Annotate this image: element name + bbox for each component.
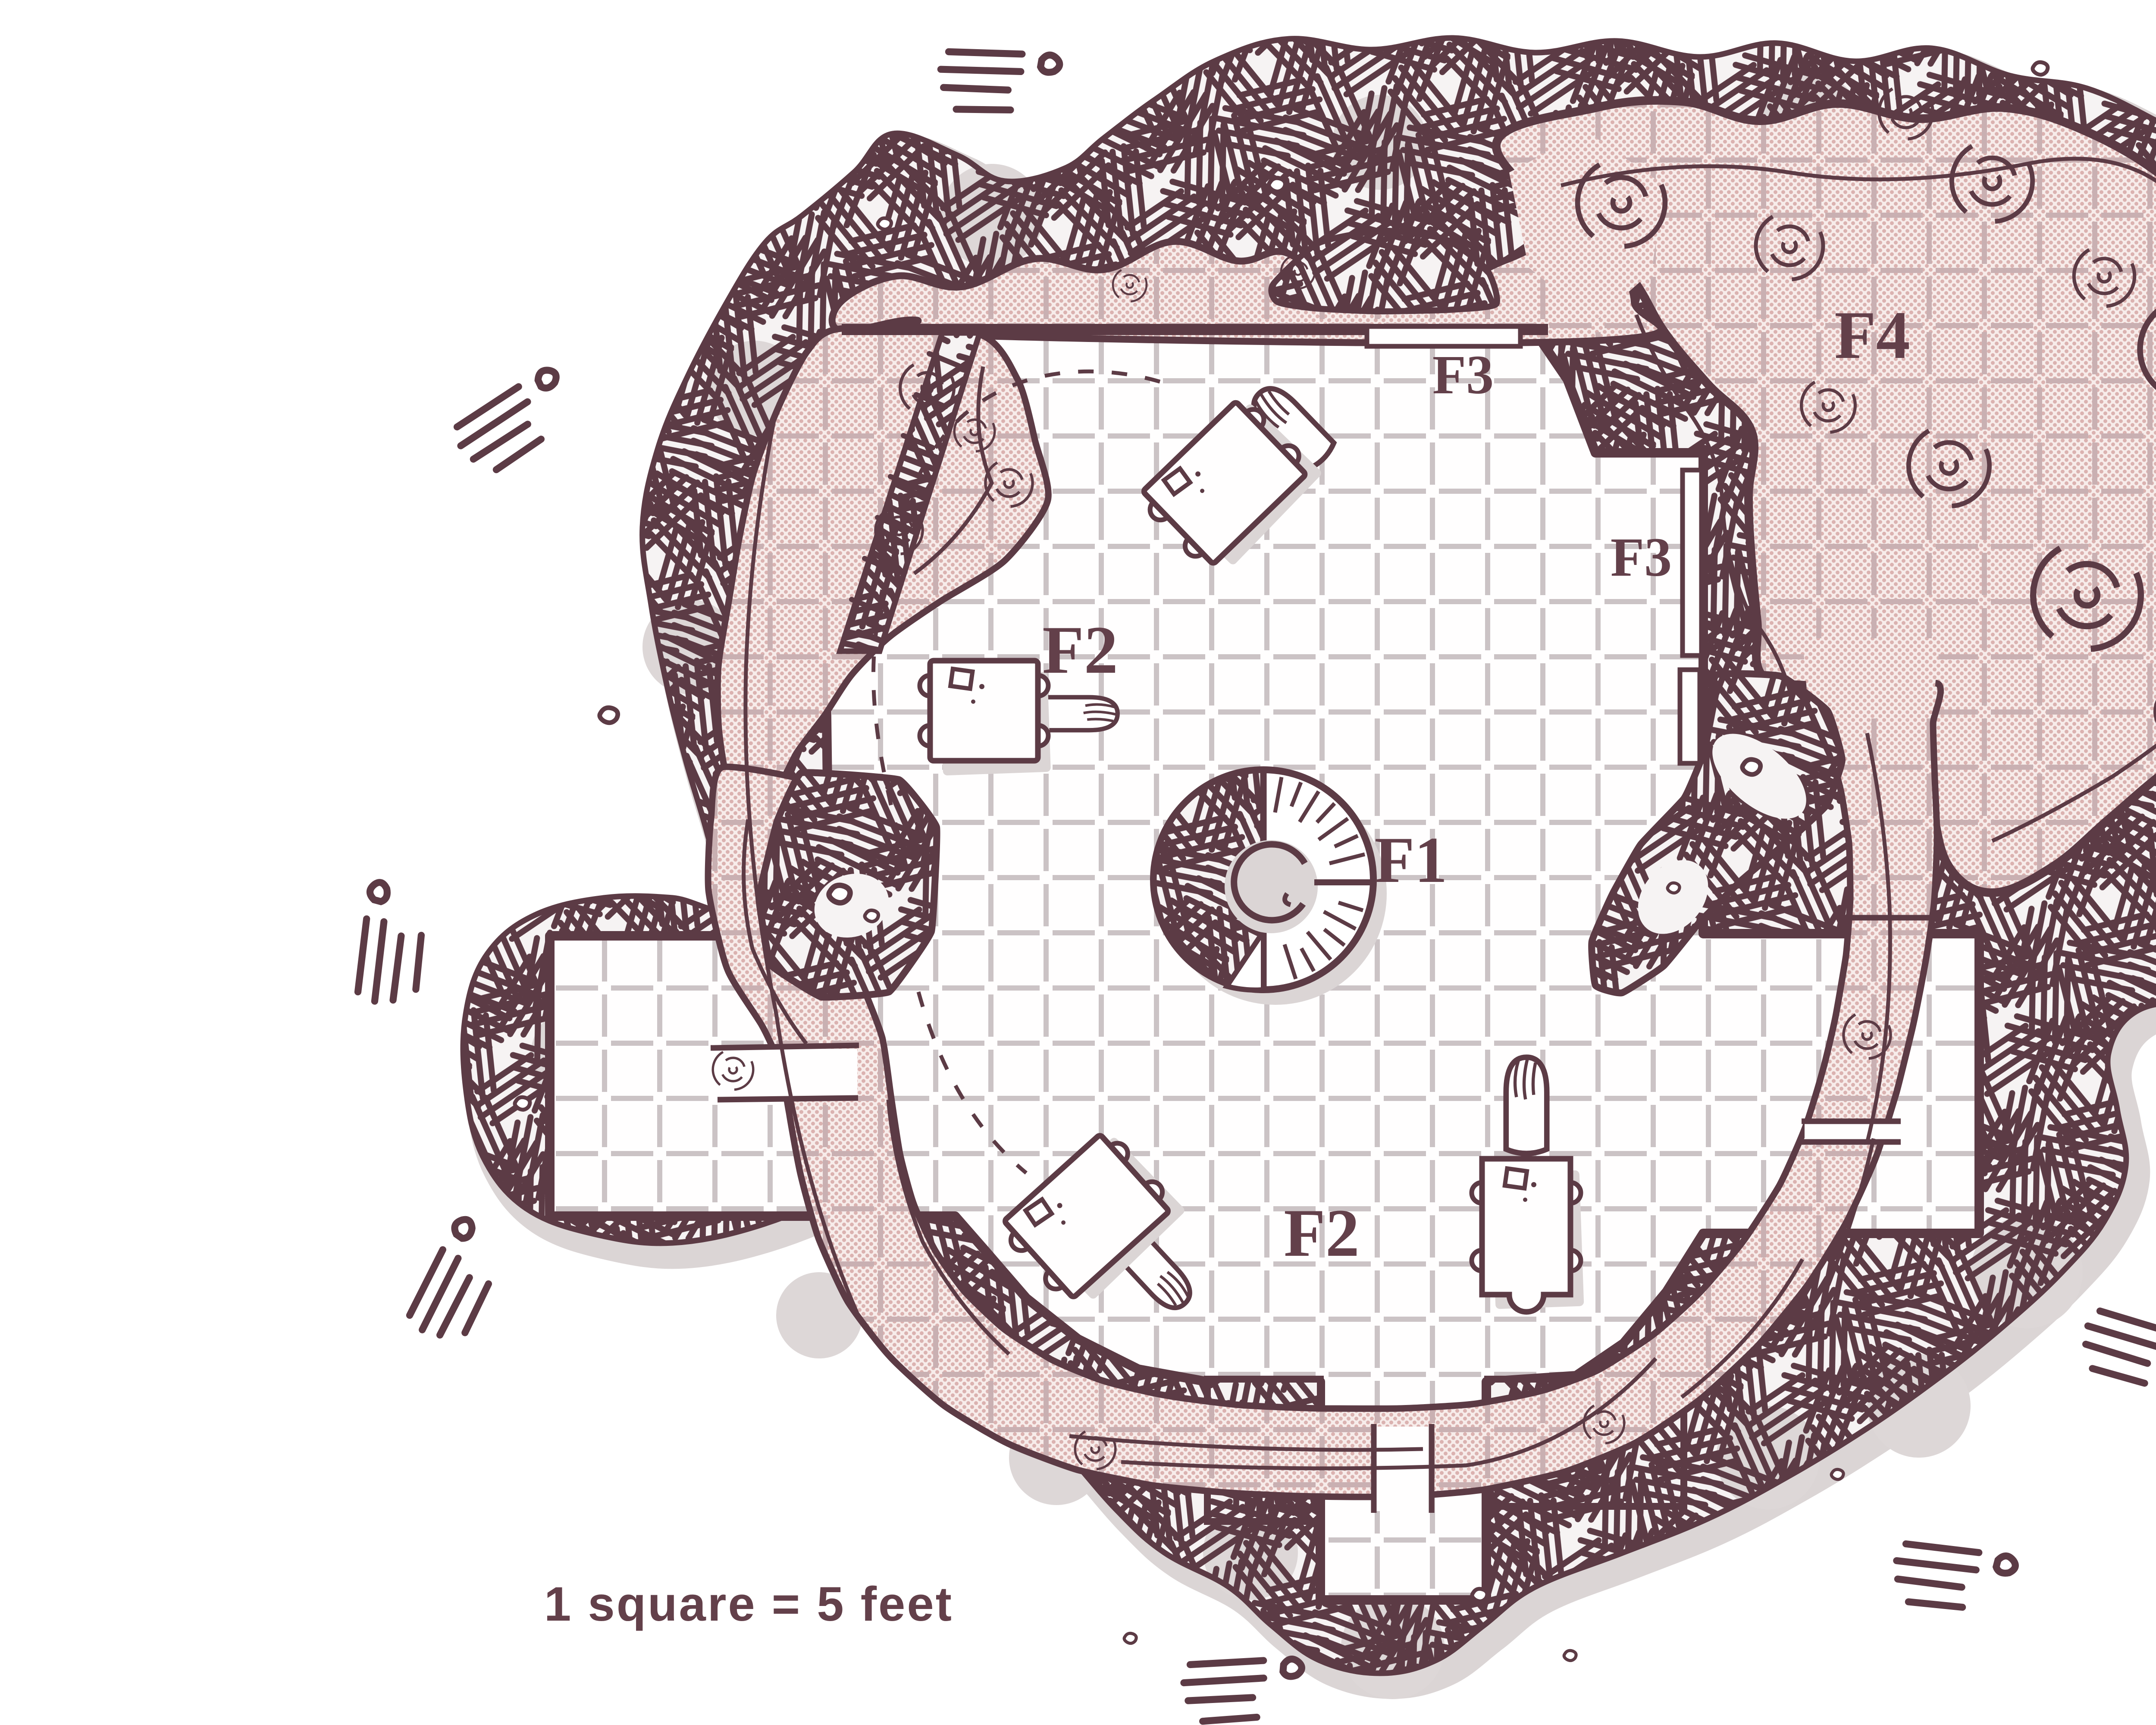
- svg-text:F1: F1: [1375, 824, 1448, 896]
- svg-text:F3: F3: [1432, 344, 1494, 405]
- svg-text:F2: F2: [1042, 612, 1118, 688]
- svg-text:F2: F2: [1284, 1195, 1360, 1271]
- svg-text:F4: F4: [1834, 298, 1910, 373]
- svg-text:F3: F3: [1611, 527, 1672, 588]
- svg-text:1 square = 5 feet: 1 square = 5 feet: [544, 1577, 953, 1631]
